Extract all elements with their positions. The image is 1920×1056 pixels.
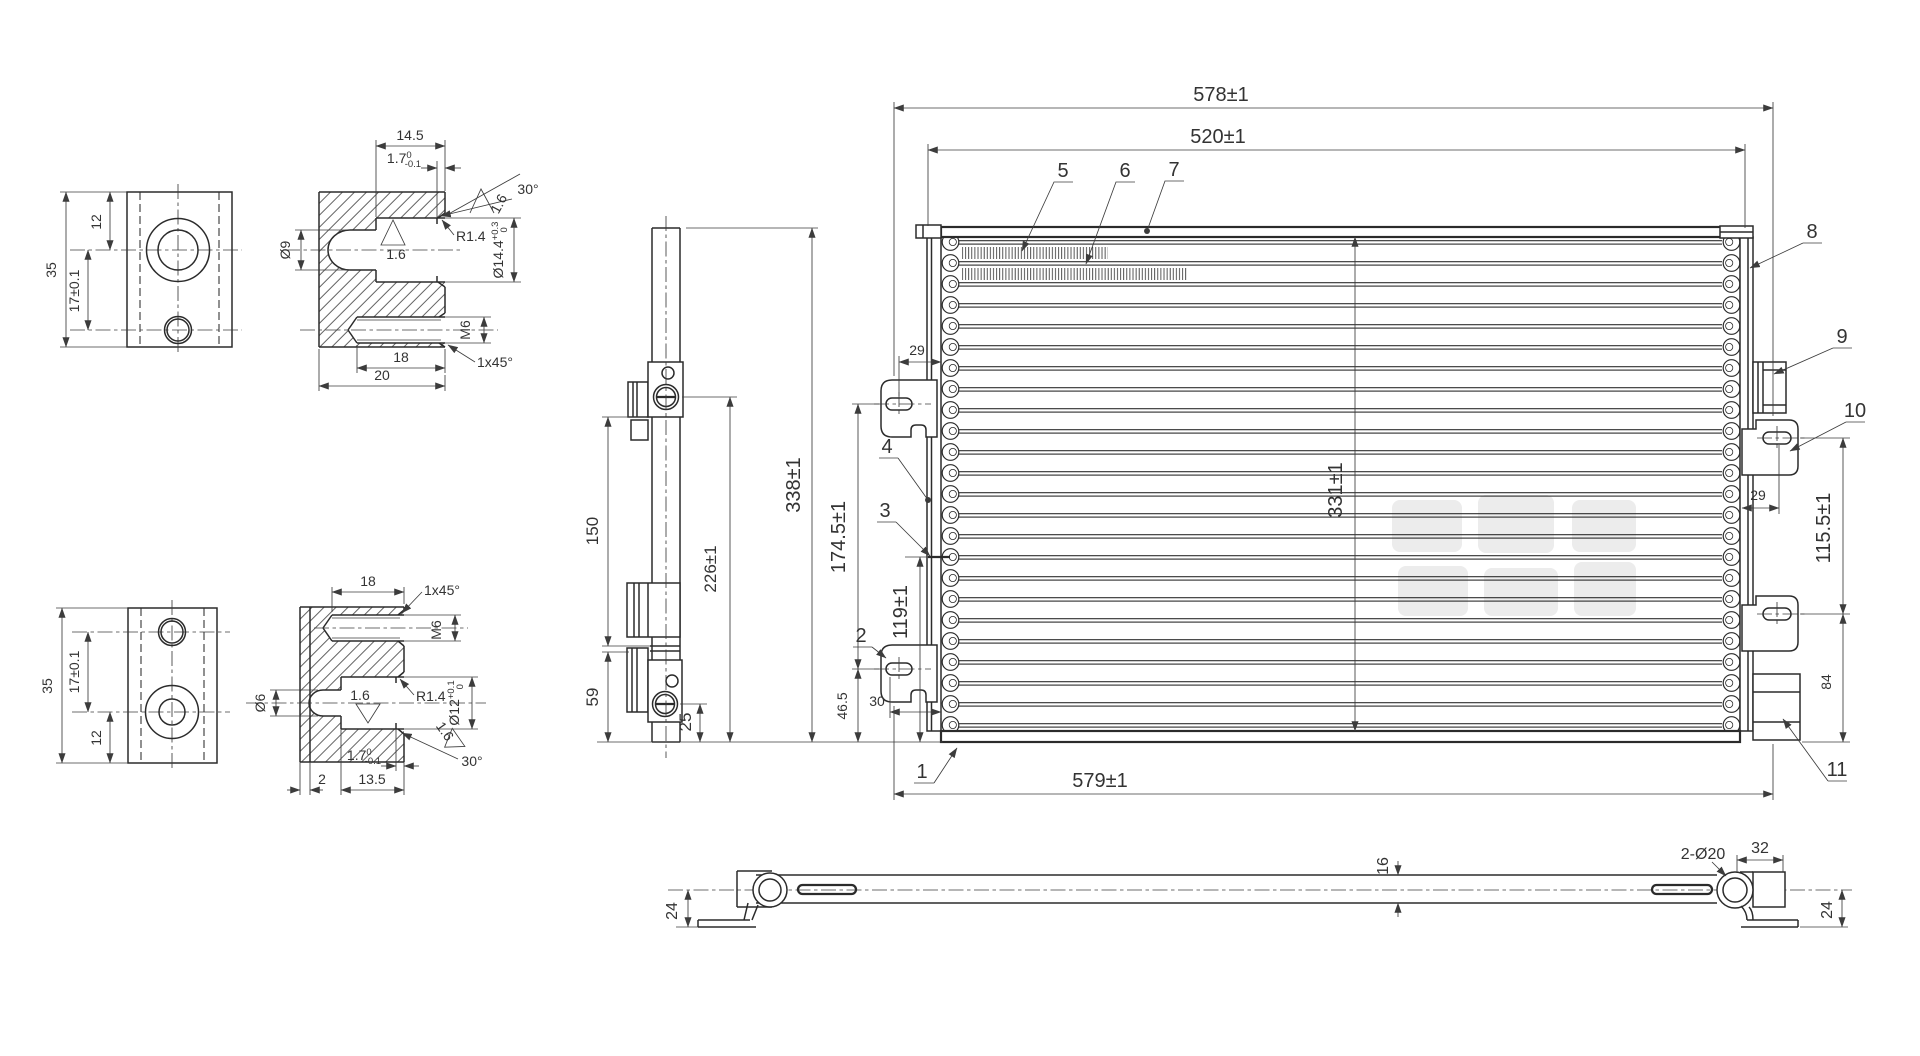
dim-bv-32: 32 <box>1751 840 1769 857</box>
dim-a-angle: 30° <box>517 181 538 197</box>
dim-sv-150: 150 <box>583 517 602 545</box>
dim-b-chamfer: 1x45° <box>424 582 460 598</box>
part-a-section-view: 14.5 1.70-0.1 30° 1.6 R1.4 1.6 Ø9 Ø14.4+… <box>277 127 539 391</box>
dim-sv-226: 226±1 <box>701 545 720 592</box>
part-a-front-dims: 35 12 17±0.1 <box>43 192 127 347</box>
dim-b-edge: 2 <box>318 771 326 787</box>
receiver-block <box>1753 674 1800 740</box>
strip-right-end <box>1717 872 1798 927</box>
callout-2: 2 <box>855 625 866 647</box>
right-mount-bracket-upper <box>1742 420 1805 475</box>
right-mount-bracket-lower <box>1742 596 1805 651</box>
dim-a-thread-depth: 18 <box>393 349 409 365</box>
dim-mv-29l: 29 <box>909 342 925 358</box>
mid-block <box>627 583 680 637</box>
dim-mv-579: 579±1 <box>1072 770 1127 792</box>
cad-drawing: 35 12 17±0.1 14.5 1.70-0.1 30° <box>0 0 1920 1056</box>
callout-1: 1 <box>916 761 927 783</box>
dim-mv-119: 119±1 <box>890 585 912 639</box>
dim-mv-84: 84 <box>1818 674 1834 690</box>
dim-bv-16: 16 <box>1375 857 1392 875</box>
dim-a-width: 20 <box>374 367 390 383</box>
dim-mv-29r: 29 <box>1750 487 1766 503</box>
dim-mv-465: 46.5 <box>834 692 850 719</box>
roughness-leader <box>445 174 520 216</box>
dim-a-depth: 14.5 <box>396 127 423 143</box>
callout-10: 10 <box>1844 400 1866 422</box>
dim-a-holedist: 17±0.1 <box>66 269 82 312</box>
dim-mv-338: 338±1 <box>783 457 805 512</box>
dim-b-hole-dia: Ø6 <box>252 693 268 712</box>
dim-sv-59: 59 <box>583 688 602 707</box>
dim-b-angle: 30° <box>461 753 482 769</box>
side-view: 150 59 25 226±1 <box>583 216 737 758</box>
upper-bracket-plate <box>628 382 648 417</box>
strip-slot-left <box>798 885 856 894</box>
dim-bv-2d20: 2-Ø20 <box>1681 846 1726 863</box>
strip-body <box>737 871 1717 907</box>
dim-a-bore-dia: Ø14.4+0.30 <box>490 222 510 279</box>
part-b-front-dims: 35 17±0.1 12 <box>39 608 128 763</box>
dim-b-thread-depth: 18 <box>360 573 376 589</box>
dim-b-rough-bore: 1.6 <box>350 687 370 703</box>
callout-8: 8 <box>1806 221 1817 243</box>
dim-mv-30: 30 <box>869 693 885 709</box>
dim-mv-578: 578±1 <box>1193 84 1248 106</box>
dim-bv-24r: 24 <box>1819 901 1836 919</box>
dim-mv-1745: 174.5±1 <box>828 501 850 573</box>
part-b-section-view: 18 1x45° M6 Ø6 1.6 R1.4 Ø12+0.10 30° 1.6… <box>246 573 486 795</box>
dim-a-thread: M6 <box>457 320 473 340</box>
upper-bracket-foot <box>631 420 648 440</box>
callout-5: 5 <box>1057 160 1068 182</box>
callout-9: 9 <box>1836 326 1847 348</box>
dim-b-holedist: 17±0.1 <box>66 650 82 693</box>
main-condenser-view: 578±1 520±1 579±1 338±1 331±1 174.5±1 46… <box>597 84 1866 800</box>
fin-band-1 <box>962 247 1108 259</box>
dim-a-hole-dia: Ø9 <box>277 240 293 259</box>
dim-bv-24l: 24 <box>664 902 681 920</box>
dim-mv-520: 520±1 <box>1190 126 1245 148</box>
fin-band-2 <box>962 268 1188 280</box>
dim-b-thread: M6 <box>428 620 444 640</box>
right-header-beads <box>1723 232 1741 736</box>
dim-mv-1155: 115.5±1 <box>1813 493 1835 564</box>
drawing-page: 35 12 17±0.1 14.5 1.70-0.1 30° <box>0 0 1920 1056</box>
dim-a-rough-bore: 1.6 <box>386 246 406 262</box>
dim-b-height: 35 <box>39 678 55 694</box>
callout-11: 11 <box>1827 759 1848 781</box>
dim-a-height: 35 <box>43 262 59 278</box>
bottom-view-dims: 24 16 2-Ø20 32 24 <box>664 840 1848 927</box>
strip-slot-right <box>1652 885 1712 894</box>
dim-sv-25: 25 <box>676 713 695 732</box>
callout-4: 4 <box>881 436 892 458</box>
right-fitting-block <box>1753 362 1786 413</box>
dim-b-offset: 12 <box>88 730 104 746</box>
dim-a-rough-face: 1.6 <box>487 191 510 216</box>
dim-mv-331: 331±1 <box>1325 462 1347 517</box>
top-side-plate <box>941 227 1740 237</box>
left-header-beads <box>942 232 960 736</box>
dim-a-chamfer: 1x45° <box>477 354 513 370</box>
bottom-side-plate <box>941 731 1740 742</box>
left-header-cap <box>916 225 941 238</box>
part-a-front-view: 35 12 17±0.1 <box>43 184 242 355</box>
right-header-plate <box>1740 237 1753 731</box>
part-b-front-view: 35 17±0.1 12 <box>39 600 230 771</box>
strip-left-end <box>698 873 787 927</box>
dim-a-offset: 12 <box>88 214 104 230</box>
dim-b-fillet: R1.4 <box>416 688 446 704</box>
callout-6: 6 <box>1119 160 1130 182</box>
dim-b-depth: 13.5 <box>358 771 385 787</box>
bottom-strip-view: 24 16 2-Ø20 32 24 <box>664 840 1852 927</box>
dim-a-step: 1.70-0.1 <box>387 150 421 170</box>
dim-a-fillet: R1.4 <box>456 228 486 244</box>
part-a-centerlines <box>70 184 242 355</box>
callout-7: 7 <box>1168 159 1179 181</box>
callout-3: 3 <box>879 500 890 522</box>
left-mount-bracket-upper <box>874 380 937 437</box>
